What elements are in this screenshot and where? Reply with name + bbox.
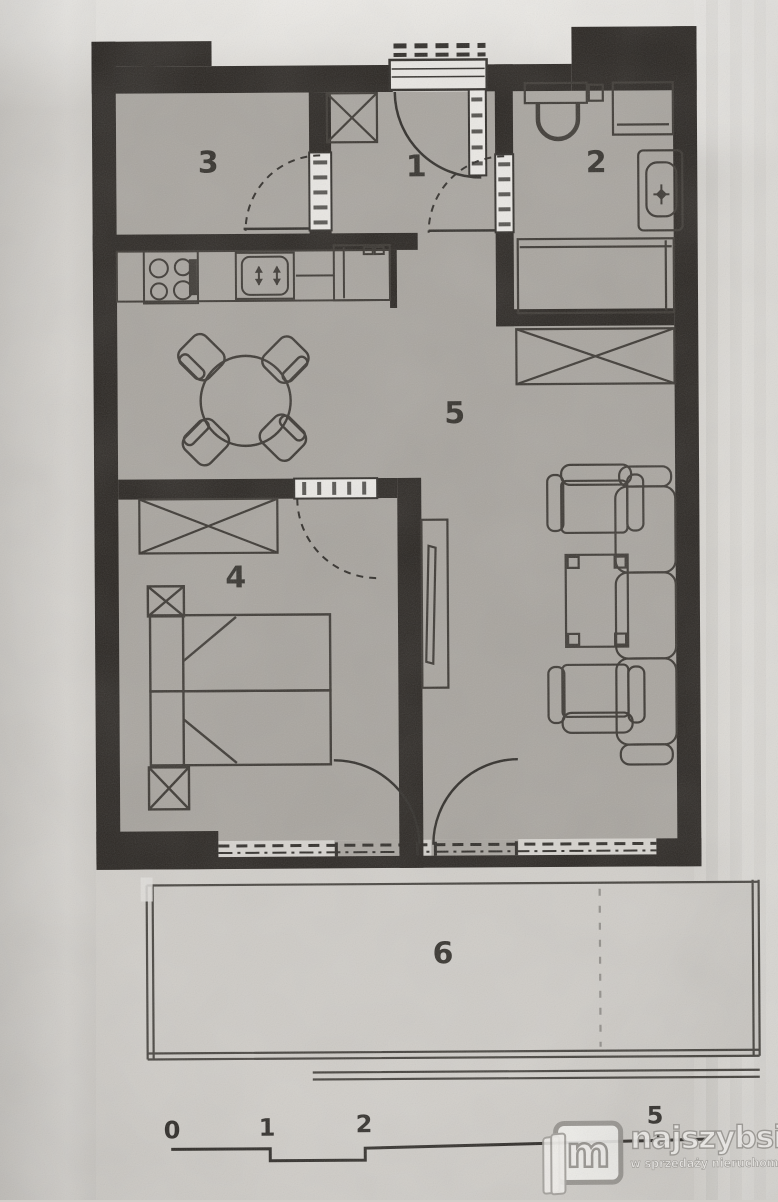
floor-plan-photo: 3 1 2 5 4 6 0 1 2 5 m najszybsi w sprzed… — [0, 0, 778, 1200]
photo-vignette — [0, 0, 778, 1200]
